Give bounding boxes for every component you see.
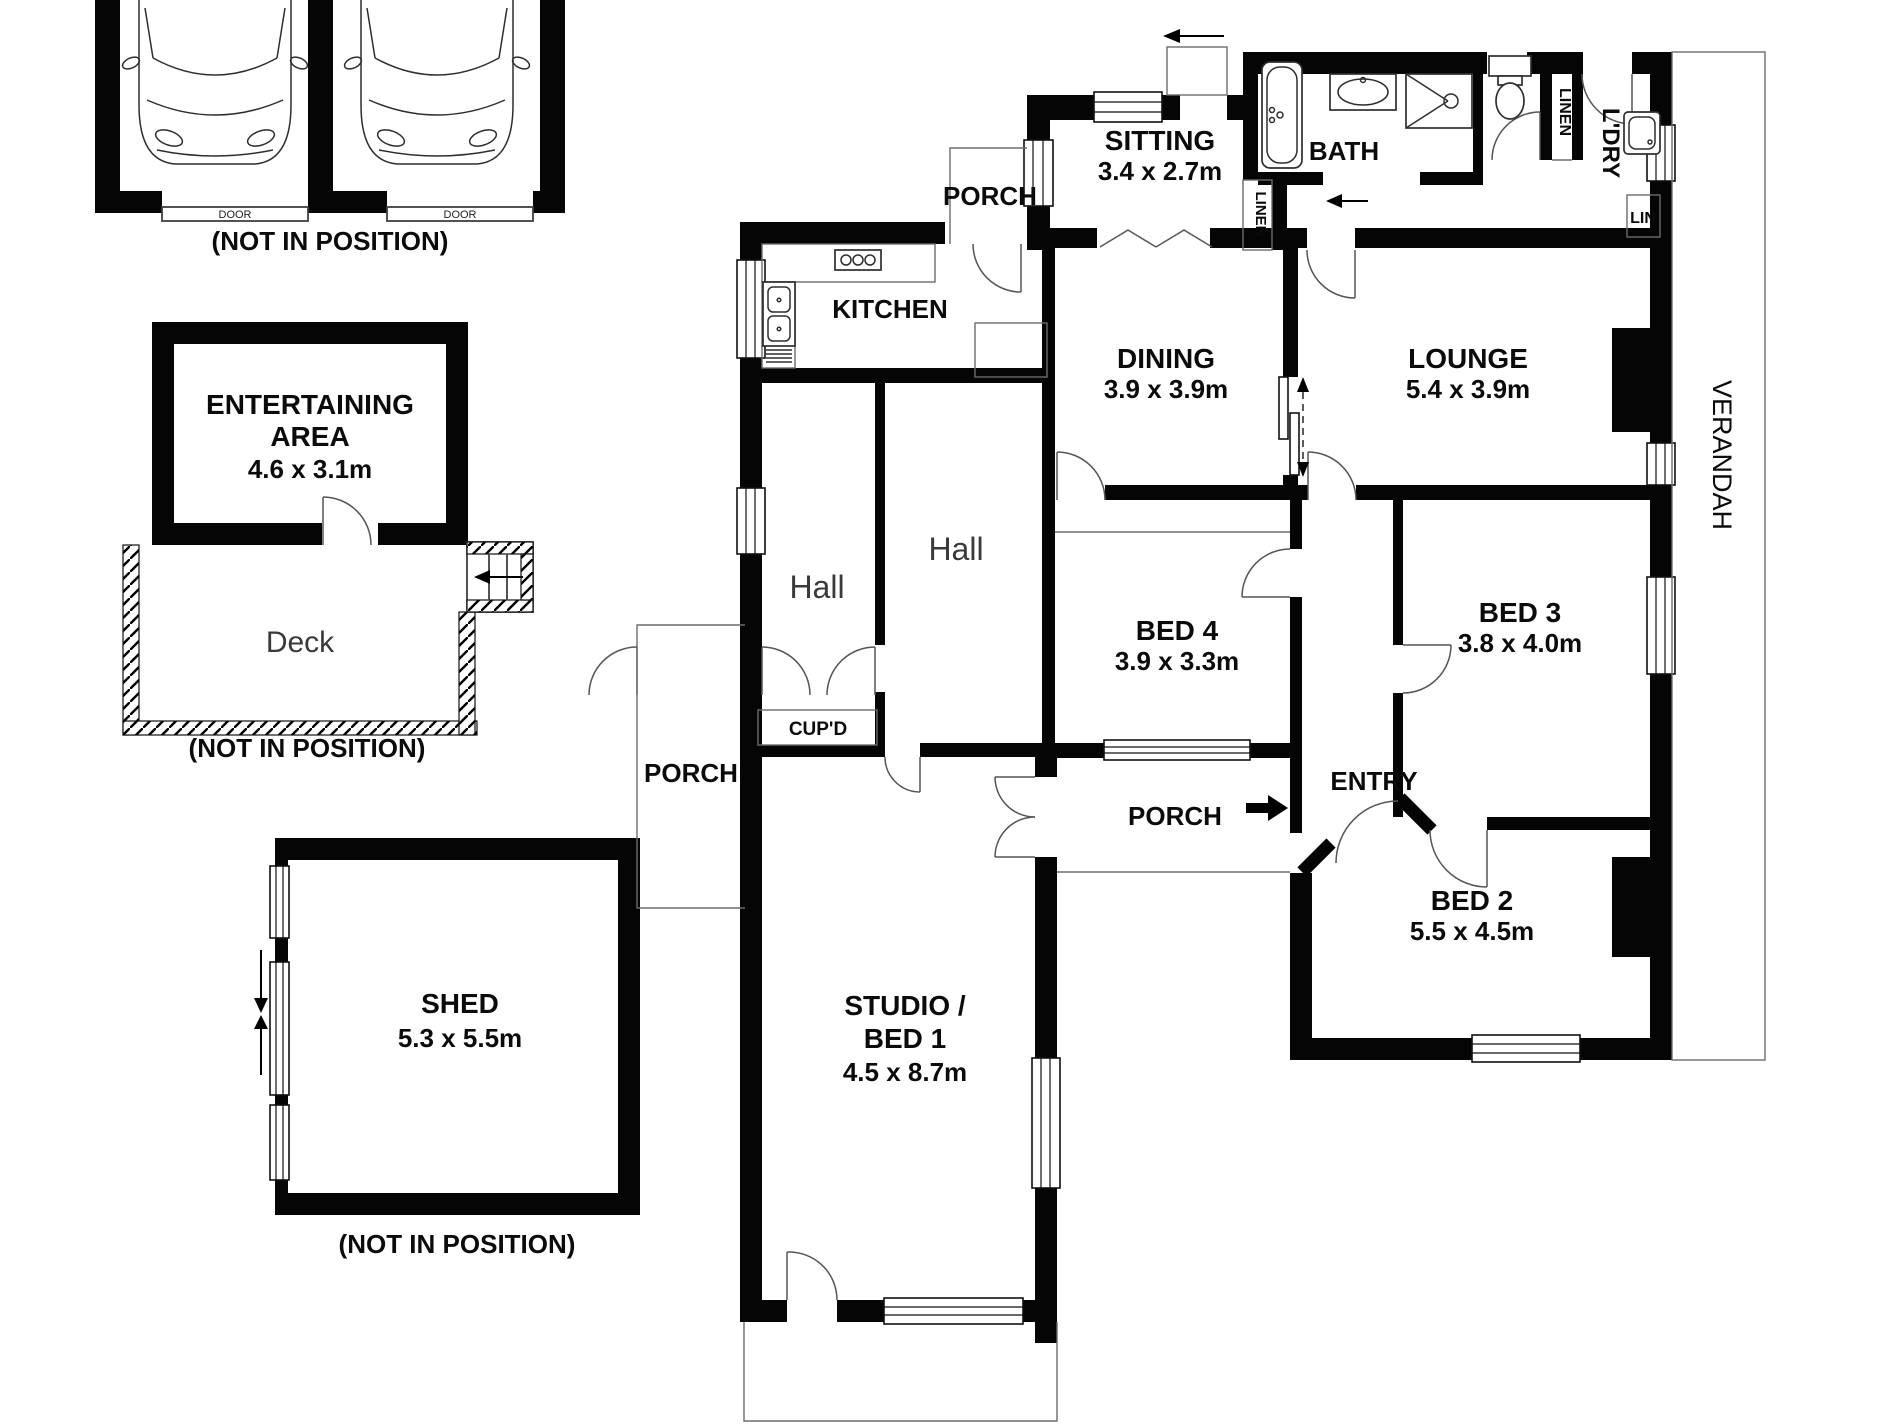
hall-left-label: Hall (789, 569, 844, 605)
porch-entry-arrow-icon (1246, 795, 1288, 821)
entertaining-area: ENTERTAINING AREA 4.6 x 3.1m (152, 322, 468, 545)
sitting-step (1167, 47, 1227, 95)
shed-note: (NOT IN POSITION) (339, 1229, 576, 1259)
sitting-entry-arrow-icon (1163, 29, 1180, 43)
bed4-label: BED 4 (1136, 615, 1219, 646)
deck-stairs-icon (467, 542, 533, 612)
bifold-door-icon (1156, 230, 1212, 247)
bath-entry-arrow-icon (1326, 194, 1342, 208)
stove-fixture (835, 250, 881, 270)
basin-fixture (1330, 74, 1396, 110)
lounge-fireplace (1612, 328, 1652, 432)
shed-label: SHED (421, 988, 499, 1019)
entertaining-door-arc (323, 497, 371, 545)
sitting-label: SITTING (1105, 125, 1215, 156)
stairs-arrow-icon (474, 570, 490, 584)
deck-label: Deck (266, 626, 335, 659)
sitting-dims: 3.4 x 2.7m (1098, 156, 1222, 186)
entertaining-label-1: ENTERTAINING (206, 389, 414, 420)
toilet-fixture (1489, 56, 1531, 119)
verandah-label: VERANDAH (1707, 380, 1737, 530)
studio-dims: 4.5 x 8.7m (843, 1057, 967, 1087)
shed-slider-arrows (254, 950, 268, 1075)
lounge-dims: 5.4 x 3.9m (1406, 374, 1530, 404)
studio-label-2: BED 1 (864, 1023, 946, 1054)
deck-edge-right (459, 612, 475, 735)
lounge-label: LOUNGE (1408, 343, 1528, 374)
linen-hall-label: LINEN (1556, 88, 1573, 136)
bed2-label: BED 2 (1431, 885, 1513, 916)
cupd-label: CUP'D (789, 719, 847, 740)
shed: SHED 5.3 x 5.5m (NOT IN POSITION) (254, 838, 640, 1259)
garage: DOOR DOOR (NOT IN POSITION) (95, 0, 565, 256)
porch-entry-label: PORCH (1128, 801, 1222, 831)
bed2-dims: 5.5 x 4.5m (1410, 916, 1534, 946)
garage-door-left-label: DOOR (219, 209, 252, 221)
floorplan-page: DOOR DOOR (NOT IN POSITION) ENTERTAINING… (0, 0, 1900, 1425)
bed2-fireplace (1612, 857, 1652, 957)
entertaining-dims: 4.6 x 3.1m (248, 454, 372, 484)
laundry-tub-fixture (1624, 112, 1660, 154)
dining-label: DINING (1117, 343, 1215, 374)
linen-bath-label: LINEN (1252, 192, 1269, 237)
sink-fixture (763, 282, 795, 362)
bed3-label: BED 3 (1479, 597, 1561, 628)
deck-edge-left (123, 545, 139, 735)
deck-note: (NOT IN POSITION) (189, 733, 426, 763)
entry-label: ENTRY (1330, 766, 1417, 796)
bed3-dims: 3.8 x 4.0m (1458, 628, 1582, 658)
slide-up-arrow-icon (1297, 377, 1309, 392)
laundry-label: L'DRY (1597, 108, 1624, 178)
main-house-walls (740, 52, 1672, 1343)
garage-door-right-label: DOOR (444, 209, 477, 221)
dining-dims: 3.9 x 3.9m (1104, 374, 1228, 404)
garage-note: (NOT IN POSITION) (212, 226, 449, 256)
porch-top-label: PORCH (943, 181, 1037, 211)
bathtub-fixture (1262, 62, 1302, 168)
deck: Deck (NOT IN POSITION) (123, 542, 533, 763)
verandah-outline (1672, 52, 1765, 1060)
porch-left-label: PORCH (644, 758, 738, 788)
patio-outline (744, 1322, 1057, 1421)
entry-angled-wall (1302, 843, 1331, 872)
lin-label: LIN (1630, 210, 1656, 227)
bifold-door-icon (1100, 230, 1156, 247)
shower-fixture (1406, 74, 1472, 128)
fixtures (762, 56, 1660, 377)
entry-angled-wall-2 (1400, 798, 1432, 830)
floorplan-svg: DOOR DOOR (NOT IN POSITION) ENTERTAINING… (0, 0, 1900, 1425)
shed-windows (270, 866, 289, 1180)
entertaining-label-2: AREA (270, 421, 349, 452)
studio-label-1: STUDIO / (844, 990, 966, 1021)
bed4-dims: 3.9 x 3.3m (1115, 646, 1239, 676)
hall-center-label: Hall (928, 531, 983, 567)
down-arrow-icon (254, 998, 268, 1013)
front-door-arc (1336, 801, 1398, 863)
up-arrow-icon (254, 1015, 268, 1029)
shed-dims: 5.3 x 5.5m (398, 1023, 522, 1053)
kitchen-label: KITCHEN (832, 294, 948, 324)
bath-label: BATH (1309, 136, 1379, 166)
